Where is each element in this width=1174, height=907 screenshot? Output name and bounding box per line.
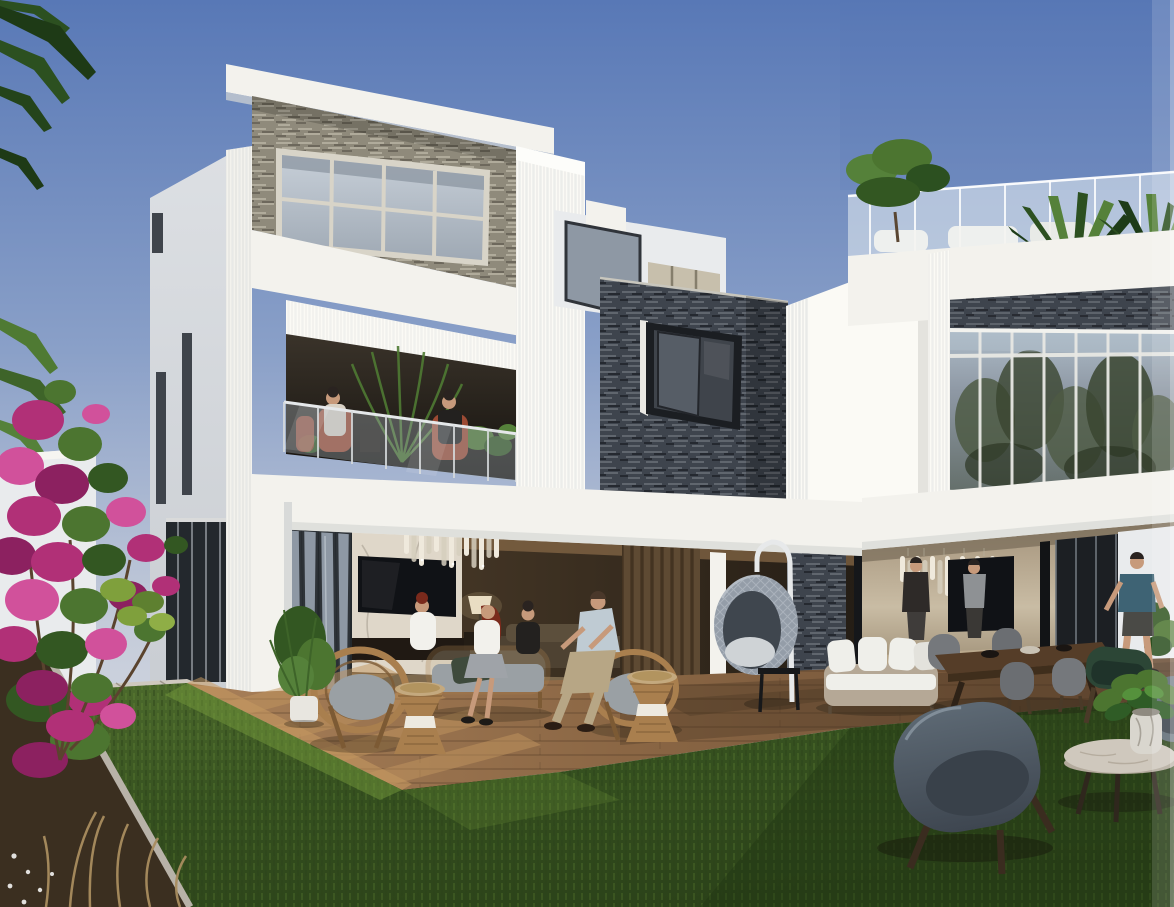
dark-window-wall <box>1056 534 1118 656</box>
corner-pilaster <box>928 250 950 506</box>
right-fluted-pier <box>516 146 585 512</box>
fluted-corner-pier <box>226 146 252 702</box>
stone-tower-window <box>640 320 742 430</box>
dining-chair <box>1052 658 1086 696</box>
architectural-render-image <box>0 0 1174 907</box>
dining-chair <box>1000 662 1034 700</box>
villa-render-canvas <box>0 0 1174 907</box>
right-edge-light-strip <box>1152 0 1174 907</box>
